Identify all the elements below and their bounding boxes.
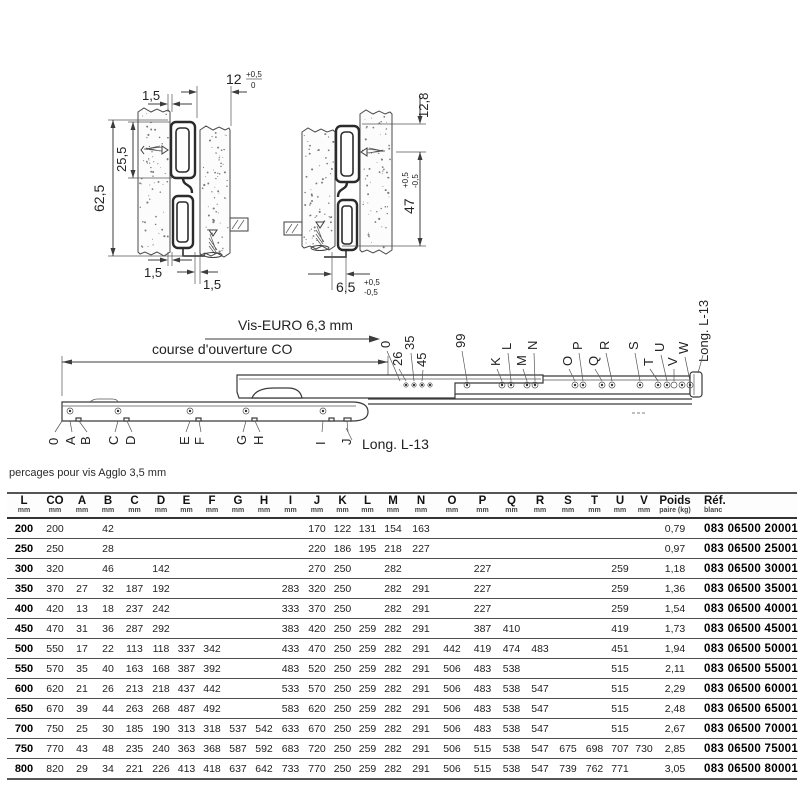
table-cell: 259 — [355, 719, 380, 739]
table-cell: 642 — [251, 759, 277, 780]
table-cell: 291 — [406, 619, 436, 639]
length-cell: 800 — [7, 759, 41, 780]
table-cell: 190 — [148, 719, 174, 739]
table-cell: 291 — [406, 659, 436, 679]
bottom-hole-labels: 0ABCDEFGHIJ — [46, 421, 354, 445]
table-cell: 515 — [607, 679, 633, 699]
table-cell: 820 — [41, 759, 69, 780]
table-cell: 250 — [41, 539, 69, 559]
table-cell: 282 — [380, 639, 406, 659]
table-cell: 291 — [406, 639, 436, 659]
table-cell — [436, 559, 468, 579]
table-cell — [554, 639, 582, 659]
table-cell — [436, 619, 468, 639]
table-cell: 547 — [526, 679, 554, 699]
right-panel — [200, 126, 230, 257]
table-cell — [251, 619, 277, 639]
table-cell — [607, 539, 633, 559]
travel-label: course d'ouverture CO — [152, 341, 293, 357]
table-cell — [497, 559, 526, 579]
table-cell: 506 — [436, 759, 468, 780]
table-cell: 221 — [121, 759, 148, 780]
table-cell — [497, 579, 526, 599]
table-cell — [174, 579, 199, 599]
table-cell — [582, 579, 607, 599]
table-cell: 17 — [69, 639, 95, 659]
table-cell — [69, 559, 95, 579]
table-cell: 192 — [148, 579, 174, 599]
table-cell: 0,97 — [655, 539, 695, 559]
table-cell: 227 — [468, 579, 497, 599]
table-cell: 683 — [277, 739, 304, 759]
table-cell: 620 — [304, 699, 330, 719]
table-cell: 42 — [95, 518, 121, 539]
table-cell — [174, 539, 199, 559]
table-cell: 218 — [148, 679, 174, 699]
table-cell — [468, 539, 497, 559]
dim-gap-top-label: 1,5 — [142, 88, 160, 103]
bottom-hole-label-D: D — [123, 436, 138, 445]
table-cell: 413 — [174, 759, 199, 780]
table-cell — [174, 619, 199, 639]
table-cell: 282 — [380, 739, 406, 759]
table-cell — [225, 559, 251, 579]
table-cell: 259 — [355, 659, 380, 679]
column-header-Q: Qmm — [497, 493, 526, 518]
table-cell: 250 — [330, 599, 355, 619]
table-row: 6506703944263268487492583620250259282291… — [7, 699, 797, 719]
dim-width-top: 12 +0,5 0 — [181, 70, 262, 126]
column-header-O: Omm — [436, 493, 468, 518]
table-cell: 291 — [406, 679, 436, 699]
table-cell — [554, 659, 582, 679]
table-cell: 515 — [607, 699, 633, 719]
column-header-Poids: Poidspaire (kg) — [655, 493, 695, 518]
bottom-hole-label-0: 0 — [46, 438, 61, 445]
table-cell: 547 — [526, 759, 554, 780]
table-cell: 259 — [355, 739, 380, 759]
table-cell: 227 — [468, 599, 497, 619]
table-cell: 483 — [468, 659, 497, 679]
column-header-S: Smm — [554, 493, 582, 518]
table-cell: 538 — [497, 739, 526, 759]
table-cell: 287 — [121, 619, 148, 639]
top-hole-label-S: S — [626, 341, 641, 350]
table-cell — [633, 579, 655, 599]
table-cell — [251, 518, 277, 539]
table-cell: 437 — [174, 679, 199, 699]
top-hole-label-35: 35 — [402, 336, 417, 350]
table-cell: 142 — [148, 559, 174, 579]
table-cell — [199, 518, 225, 539]
table-cell: 320 — [304, 579, 330, 599]
table-cell: 538 — [497, 759, 526, 780]
table-cell: 250 — [330, 759, 355, 780]
column-header-H: Hmm — [251, 493, 277, 518]
table-cell — [582, 559, 607, 579]
table-cell — [497, 599, 526, 619]
table-cell: 3,05 — [655, 759, 695, 780]
column-header-D: Dmm — [148, 493, 174, 518]
table-cell: 163 — [406, 518, 436, 539]
table-cell — [251, 539, 277, 559]
table-cell — [554, 579, 582, 599]
dim-rail-height-label: 25,5 — [114, 147, 129, 172]
table-cell: 318 — [199, 719, 225, 739]
table-cell: 337 — [174, 639, 199, 659]
table-cell — [526, 619, 554, 639]
table-cell — [554, 699, 582, 719]
dim-top-offset-label: 12,8 — [416, 93, 431, 118]
length-cell: 200 — [7, 518, 41, 539]
table-cell: 250 — [330, 639, 355, 659]
table-cell: 592 — [251, 739, 277, 759]
table-cell — [148, 518, 174, 539]
table-cell: 282 — [380, 599, 406, 619]
table-cell: 259 — [607, 579, 633, 599]
table-cell: 282 — [380, 759, 406, 780]
table-cell: 583 — [277, 699, 304, 719]
dim-bottom-gap-tol-plus: +0,5 — [364, 278, 380, 287]
table-cell: 259 — [355, 699, 380, 719]
table-cell: 2,11 — [655, 659, 695, 679]
table-cell: 22 — [95, 639, 121, 659]
table-cell: 282 — [380, 579, 406, 599]
right-panel — [360, 110, 392, 254]
table-cell — [633, 759, 655, 780]
table-cell: 2,29 — [655, 679, 695, 699]
table-cell — [526, 659, 554, 679]
bottom-hole-label-G: G — [234, 435, 249, 445]
table-cell: 259 — [355, 679, 380, 699]
column-header-I: Imm — [277, 493, 304, 518]
table-cell — [582, 719, 607, 739]
top-hole-label-U: U — [652, 343, 667, 352]
table-row: 8008202934221226413418637642733770250259… — [7, 759, 797, 780]
table-cell — [436, 579, 468, 599]
table-cell: 282 — [380, 719, 406, 739]
table-cell — [633, 679, 655, 699]
table-cell: 670 — [304, 719, 330, 739]
table-cell: 21 — [69, 679, 95, 699]
table-cell: 282 — [380, 679, 406, 699]
datasheet-page: { "drawings": { "left_section": { "gap_t… — [0, 0, 800, 800]
dim-gap-bottom-center-label: 1,5 — [203, 277, 221, 292]
table-cell: 418 — [199, 759, 225, 780]
table-row: 7007502530185190313318537542633670250259… — [7, 719, 797, 739]
top-hole-label-R: R — [597, 341, 612, 350]
top-hole-label-N: N — [525, 341, 540, 350]
table-cell: 259 — [607, 559, 633, 579]
table-cell: 410 — [497, 619, 526, 639]
table-cell — [582, 659, 607, 679]
length-cell: 250 — [7, 539, 41, 559]
table-cell: 291 — [406, 759, 436, 780]
table-cell — [199, 579, 225, 599]
table-cell — [497, 539, 526, 559]
table-cell: 420 — [304, 619, 330, 639]
table-cell: 698 — [582, 739, 607, 759]
ref-cell: 083 06500 65001 — [695, 699, 797, 719]
table-cell — [633, 599, 655, 619]
table-cell: 0,79 — [655, 518, 695, 539]
table-cell: 2,48 — [655, 699, 695, 719]
dim-gap-bottom-center: 1,5 — [177, 252, 221, 292]
table-cell: 387 — [468, 619, 497, 639]
table-row: 5005501722113118337342433470250259282291… — [7, 639, 797, 659]
bottom-hole-label-I: I — [313, 441, 328, 445]
ref-cell: 083 06500 30001 — [695, 559, 797, 579]
table-cell: 313 — [174, 719, 199, 739]
table-cell: 170 — [304, 518, 330, 539]
table-cell: 733 — [277, 759, 304, 780]
table-cell — [633, 719, 655, 739]
table-cell — [355, 599, 380, 619]
table-cell: 533 — [277, 679, 304, 699]
table-cell: 237 — [121, 599, 148, 619]
table-cell: 515 — [468, 759, 497, 780]
table-cell: 291 — [406, 579, 436, 599]
column-header-B: Bmm — [95, 493, 121, 518]
table-cell: 370 — [41, 579, 69, 599]
length-label-bottom: Long. L-13 — [362, 436, 429, 452]
table-cell — [436, 518, 468, 539]
table-cell — [582, 599, 607, 619]
dim-width-top-tol-plus: +0,5 — [246, 70, 262, 79]
table-cell — [582, 619, 607, 639]
table-cell — [174, 599, 199, 619]
table-cell: 250 — [330, 719, 355, 739]
table-cell: 282 — [380, 659, 406, 679]
length-cell: 550 — [7, 659, 41, 679]
table-cell: 291 — [406, 599, 436, 619]
table-cell: 420 — [41, 599, 69, 619]
table-cell — [225, 518, 251, 539]
table-cell — [633, 559, 655, 579]
table-cell — [582, 518, 607, 539]
table-cell: 333 — [277, 599, 304, 619]
table-cell: 39 — [69, 699, 95, 719]
right-cross-section: 12,8 47 +0,5 -0,5 6,5 +0,5 -0,5 — [284, 93, 431, 297]
bottom-hole-label-E: E — [177, 436, 192, 445]
table-cell: 2,67 — [655, 719, 695, 739]
table-cell — [633, 539, 655, 559]
column-header-L: Lmm — [355, 493, 380, 518]
table-cell: 470 — [304, 639, 330, 659]
table-cell: 32 — [95, 579, 121, 599]
table-cell: 292 — [148, 619, 174, 639]
table-cell: 538 — [497, 659, 526, 679]
table-cell: 131 — [355, 518, 380, 539]
column-header-M: Mmm — [380, 493, 406, 518]
table-cell: 240 — [148, 739, 174, 759]
table-cell: 113 — [121, 639, 148, 659]
column-header-R: Rmm — [526, 493, 554, 518]
table-cell: 483 — [277, 659, 304, 679]
table-cell — [121, 518, 148, 539]
table-cell — [582, 539, 607, 559]
column-header-L: Lmm — [7, 493, 41, 518]
dim-height-label: 47 — [401, 198, 417, 214]
table-cell — [497, 518, 526, 539]
table-cell: 1,18 — [655, 559, 695, 579]
table-cell: 27 — [69, 579, 95, 599]
table-cell: 250 — [330, 559, 355, 579]
length-cell: 500 — [7, 639, 41, 659]
table-cell: 250 — [330, 739, 355, 759]
table-cell: 442 — [436, 639, 468, 659]
table-cell: 218 — [380, 539, 406, 559]
table-cell — [526, 539, 554, 559]
table-row: 40042013182372423333702502822912272591,5… — [7, 599, 797, 619]
table-cell: 739 — [554, 759, 582, 780]
table-cell — [174, 559, 199, 579]
table-cell: 342 — [199, 639, 225, 659]
table-cell: 46 — [95, 559, 121, 579]
table-cell: 227 — [406, 539, 436, 559]
rail-end-cap — [690, 372, 702, 397]
table-cell — [199, 599, 225, 619]
table-cell: 419 — [468, 639, 497, 659]
table-cell — [526, 559, 554, 579]
bottom-hole-label-H: H — [251, 436, 266, 445]
table-cell: 515 — [607, 719, 633, 739]
ref-cell: 083 06500 45001 — [695, 619, 797, 639]
table-cell: 483 — [468, 719, 497, 739]
table-cell — [633, 619, 655, 639]
table-cell: 250 — [330, 619, 355, 639]
table-cell — [174, 518, 199, 539]
table-cell — [251, 659, 277, 679]
table-cell — [436, 599, 468, 619]
table-cell — [633, 639, 655, 659]
table-cell: 1,73 — [655, 619, 695, 639]
table-cell: 13 — [69, 599, 95, 619]
table-cell: 483 — [526, 639, 554, 659]
column-header-A: Amm — [69, 493, 95, 518]
table-cell: 392 — [199, 659, 225, 679]
dim-bottom-gap-label: 6,5 — [336, 279, 356, 295]
table-cell — [277, 559, 304, 579]
table-cell — [251, 599, 277, 619]
column-header-F: Fmm — [199, 493, 225, 518]
table-cell: 542 — [251, 719, 277, 739]
length-cell: 700 — [7, 719, 41, 739]
top-hole-label-V: V — [665, 357, 680, 366]
table-cell: 483 — [468, 699, 497, 719]
table-cell: 506 — [436, 699, 468, 719]
table-cell: 250 — [330, 679, 355, 699]
table-cell: 363 — [174, 739, 199, 759]
table-cell — [355, 559, 380, 579]
length-cell: 400 — [7, 599, 41, 619]
table-cell: 770 — [41, 739, 69, 759]
dim-height-tol-plus: +0,5 — [401, 172, 410, 188]
table-cell: 419 — [607, 619, 633, 639]
table-cell: 750 — [41, 719, 69, 739]
table-cell: 44 — [95, 699, 121, 719]
table-row: 300320461422702502822272591,18083 06500 … — [7, 559, 797, 579]
table-cell — [225, 539, 251, 559]
table-cell — [199, 559, 225, 579]
table-cell: 187 — [121, 579, 148, 599]
table-cell: 547 — [526, 719, 554, 739]
table-cell: 291 — [406, 699, 436, 719]
column-header-C: Cmm — [121, 493, 148, 518]
table-cell: 474 — [497, 639, 526, 659]
top-hole-label-L: L — [499, 343, 514, 350]
table-cell — [554, 539, 582, 559]
table-cell — [199, 539, 225, 559]
table-cell — [582, 679, 607, 699]
table-cell: 154 — [380, 518, 406, 539]
table-cell: 18 — [95, 599, 121, 619]
table-cell: 291 — [406, 719, 436, 739]
top-hole-label-T: T — [641, 358, 656, 366]
table-cell — [251, 559, 277, 579]
ref-cell: 083 06500 20001 — [695, 518, 797, 539]
table-cell: 487 — [174, 699, 199, 719]
table-cell — [251, 579, 277, 599]
column-header-P: Pmm — [468, 493, 497, 518]
table-cell: 720 — [304, 739, 330, 759]
length-cell: 450 — [7, 619, 41, 639]
table-cell: 538 — [497, 679, 526, 699]
table-cell — [526, 579, 554, 599]
left-panel — [138, 108, 170, 256]
table-cell: 470 — [41, 619, 69, 639]
column-header-J: Jmm — [304, 493, 330, 518]
table-cell: 538 — [497, 699, 526, 719]
table-row: 4504703136287292383420250259282291387410… — [7, 619, 797, 639]
column-header-U: Umm — [607, 493, 633, 518]
column-header-N: Nmm — [406, 493, 436, 518]
ref-cell: 083 06500 25001 — [695, 539, 797, 559]
ref-cell: 083 06500 55001 — [695, 659, 797, 679]
table-cell: 282 — [380, 559, 406, 579]
table-cell: 122 — [330, 518, 355, 539]
table-cell: 291 — [406, 739, 436, 759]
table-cell: 433 — [277, 639, 304, 659]
left-panel — [302, 128, 335, 250]
table-cell: 34 — [95, 759, 121, 780]
table-cell: 28 — [95, 539, 121, 559]
top-hole-label-M: M — [514, 355, 529, 366]
table-cell — [582, 699, 607, 719]
table-cell: 259 — [355, 619, 380, 639]
table-cell: 168 — [148, 659, 174, 679]
table-cell: 282 — [380, 699, 406, 719]
table-cell: 1,54 — [655, 599, 695, 619]
spec-table-header: LmmCOmmAmmBmmCmmDmmEmmFmmGmmHmmImmJmmKmm… — [7, 493, 797, 518]
table-cell: 2,85 — [655, 739, 695, 759]
table-cell: 227 — [468, 559, 497, 579]
dim-width-top-tol-minus: 0 — [251, 81, 256, 90]
table-cell: 442 — [199, 679, 225, 699]
table-cell — [436, 539, 468, 559]
table-cell — [554, 559, 582, 579]
table-cell — [582, 639, 607, 659]
top-hole-label-Q: Q — [586, 356, 601, 366]
table-cell — [633, 659, 655, 679]
table-cell: 259 — [607, 599, 633, 619]
table-cell — [69, 539, 95, 559]
table-cell — [355, 579, 380, 599]
table-cell — [148, 539, 174, 559]
ref-cell: 083 06500 60001 — [695, 679, 797, 699]
table-cell — [554, 679, 582, 699]
table-cell: 226 — [148, 759, 174, 780]
